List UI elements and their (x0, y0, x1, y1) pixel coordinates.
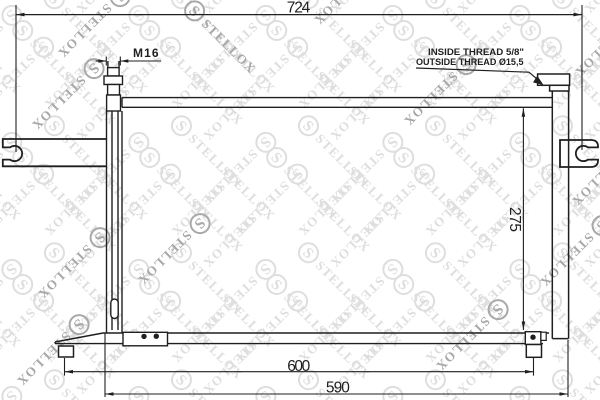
svg-text:590: 590 (326, 380, 350, 397)
svg-text:STELLOX: STELLOX (0, 305, 39, 365)
svg-text:STELLOX: STELLOX (0, 178, 39, 238)
svg-text:STELLOX: STELLOX (135, 228, 195, 288)
svg-text:STELLOX: STELLOX (401, 69, 461, 129)
svg-text:OUTSIDE THREAD Ø15,5: OUTSIDE THREAD Ø15,5 (416, 57, 524, 67)
svg-text:724: 724 (287, 0, 311, 16)
svg-text:STELLOX: STELLOX (0, 51, 39, 111)
svg-text:275: 275 (506, 207, 523, 232)
svg-text:600: 600 (287, 358, 310, 375)
svg-text:M16: M16 (133, 46, 159, 60)
svg-text:INSIDE THREAD 5/8": INSIDE THREAD 5/8" (428, 47, 524, 57)
